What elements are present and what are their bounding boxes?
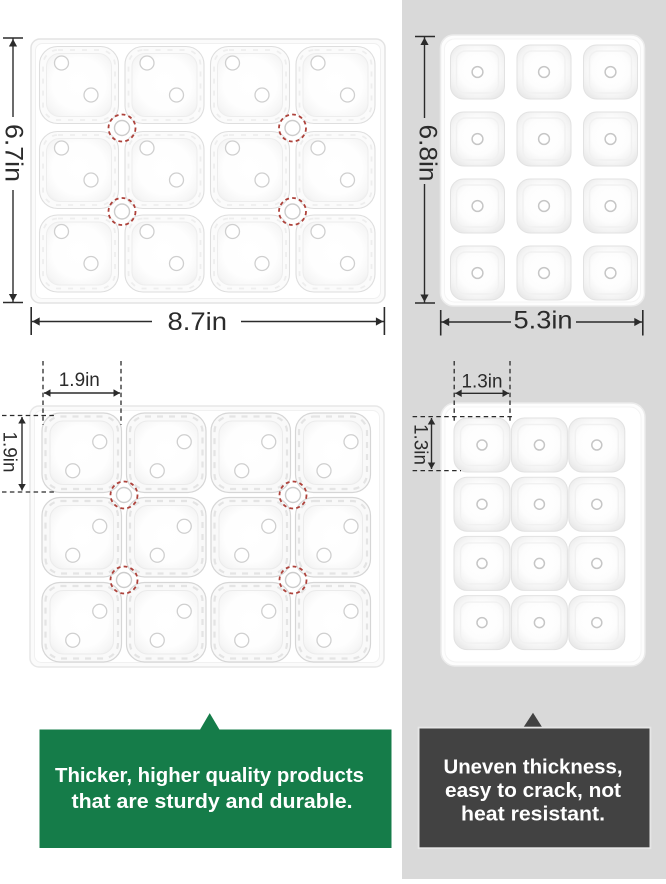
svg-text:Uneven thickness,: Uneven thickness, xyxy=(444,757,623,779)
svg-text:Thicker, higher quality produc: Thicker, higher quality products xyxy=(55,765,364,787)
svg-text:heat resistant.: heat resistant. xyxy=(461,804,605,826)
svg-text:6.7in: 6.7in xyxy=(0,124,28,182)
svg-text:that are sturdy and durable.: that are sturdy and durable. xyxy=(72,791,353,813)
svg-text:easy to crack, not: easy to crack, not xyxy=(445,780,621,802)
svg-text:1.9in: 1.9in xyxy=(59,370,100,391)
svg-text:5.3in: 5.3in xyxy=(514,307,573,335)
svg-text:8.7in: 8.7in xyxy=(168,308,228,336)
svg-text:6.8in: 6.8in xyxy=(414,125,442,182)
svg-text:1.3in: 1.3in xyxy=(409,424,430,465)
svg-text:1.3in: 1.3in xyxy=(462,372,503,393)
svg-text:1.9in: 1.9in xyxy=(0,432,19,473)
